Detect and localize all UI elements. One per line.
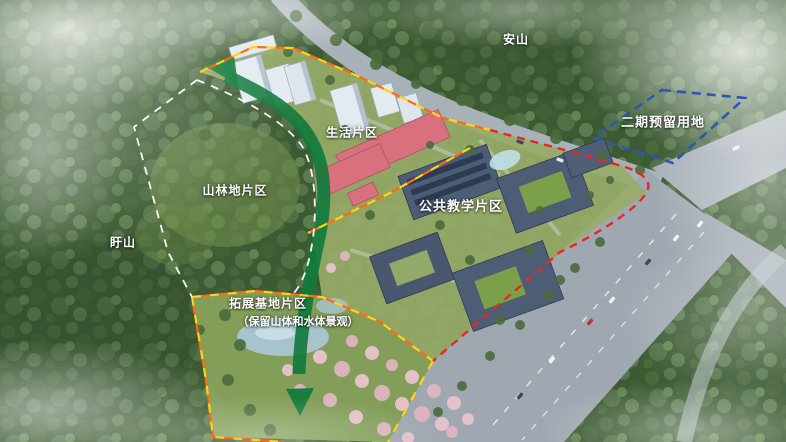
tree-green	[456, 94, 468, 106]
tree-green	[495, 315, 505, 325]
tree-green	[219, 309, 231, 321]
tree-green	[426, 141, 434, 149]
tree-green	[586, 191, 594, 199]
tree-green	[457, 381, 467, 391]
tree-green	[340, 125, 350, 135]
tree-cherry	[340, 251, 350, 261]
tree-cherry	[446, 426, 458, 438]
tree-cherry	[346, 335, 358, 347]
tree-cherry	[355, 374, 369, 388]
tree-cherry	[386, 359, 398, 371]
tree-green	[543, 290, 553, 300]
tree-green	[222, 374, 234, 386]
tree-cherry	[334, 361, 350, 377]
tree-green	[536, 206, 544, 214]
tree-cherry	[374, 385, 390, 401]
tree-cherry	[447, 396, 461, 410]
tree-cherry	[462, 413, 474, 425]
tree-green	[365, 210, 375, 220]
tree-green	[504, 114, 516, 126]
tree-green	[550, 132, 562, 144]
tree-green	[325, 75, 335, 85]
tree-cherry	[282, 364, 294, 376]
tree-green	[555, 275, 565, 285]
pond-highlight	[255, 326, 295, 340]
masterplan-scene	[0, 0, 786, 442]
tree-green	[433, 407, 443, 417]
campus-masterplan-rendering: 安山 二期预留用地 生活片区 山林地片区 盱山 公共教学片区 拓展基地片区 （保…	[0, 0, 786, 442]
tree-cherry	[326, 263, 336, 273]
tree-cherry	[405, 370, 419, 384]
tree-green	[435, 220, 445, 230]
tree-cherry	[365, 346, 379, 360]
tree-green	[370, 58, 382, 70]
tree-green	[595, 237, 605, 247]
tree-green	[606, 176, 614, 184]
tree-green	[234, 339, 246, 351]
tree-green	[465, 255, 475, 265]
tree-green	[485, 351, 495, 361]
tree-green	[411, 79, 421, 89]
tree-cherry	[427, 384, 441, 398]
tree-cherry	[313, 350, 327, 364]
tree-green	[515, 320, 525, 330]
tree-green	[570, 263, 580, 273]
tree-green	[525, 245, 535, 255]
